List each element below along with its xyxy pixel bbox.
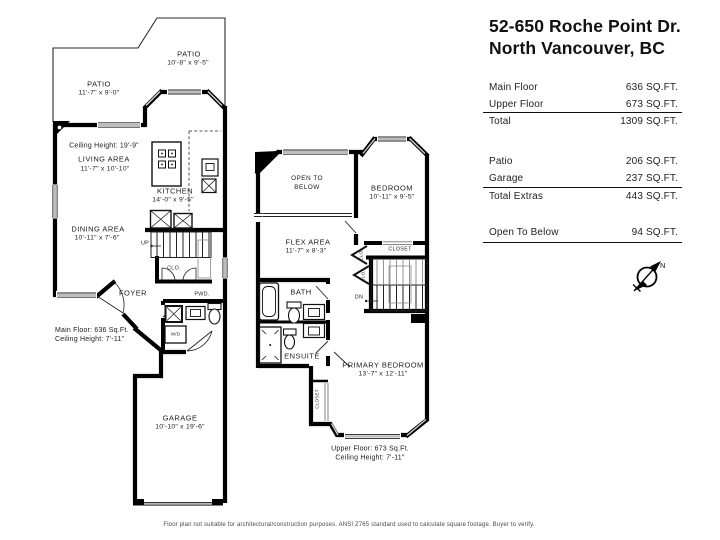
compass-icon	[633, 261, 661, 292]
bedroom-dims: 10'-11" x 9'-5"	[369, 195, 414, 202]
row-label: Total Extras	[489, 191, 543, 202]
row-value: 206 SQ.FT.	[626, 156, 678, 167]
dn-label: DN	[355, 295, 363, 300]
summary-row-open-below: Open To Below 94 SQ.FT.	[489, 227, 678, 238]
bedroom-name: BEDROOM	[371, 184, 413, 192]
flex-area-dims: 11'-7" x 8'-3"	[285, 249, 326, 256]
row-value: 94 SQ.FT.	[632, 227, 678, 238]
window-top-wall	[97, 121, 141, 130]
row-label: Patio	[489, 156, 513, 167]
patio-upper-dims: 10'-8" x 9'-5"	[167, 61, 209, 68]
kitchen-name: KITCHEN	[157, 187, 193, 195]
row-label: Open To Below	[489, 227, 559, 238]
window-dining	[56, 291, 97, 300]
compass-n-label: N	[660, 261, 665, 270]
wall-notch	[411, 314, 428, 323]
ensuite-label: ENSUITE	[284, 352, 320, 360]
garage-entry-door	[187, 331, 212, 351]
closet-label-main: CLO.	[167, 266, 181, 271]
patio-outline	[53, 18, 225, 122]
garage-name: GARAGE	[163, 414, 198, 422]
page-title-line2: North Vancouver, BC	[489, 38, 665, 59]
disclaimer-text: Floor plan not suitable for architectura…	[148, 522, 550, 528]
main-floor-footer-1: Main Floor: 636 Sq.Ft.	[55, 327, 129, 334]
kitchen-appliance-wall	[202, 179, 216, 193]
row-value: 1309 SQ.FT.	[620, 116, 678, 127]
bedroom-closet-label: CLOSET	[388, 247, 411, 252]
bath-vanity	[304, 305, 325, 320]
clo2-label: CLO.	[362, 270, 367, 282]
corner-wedge-main	[53, 121, 70, 138]
garage-dims: 10'-10" x 19'-6"	[155, 425, 205, 432]
corner-light	[58, 126, 62, 130]
kitchen-appliance-b	[174, 214, 192, 229]
patio-lower-dims: 11'-7" x 9'-0"	[78, 91, 119, 98]
garage-door	[133, 499, 223, 506]
main-floor-plan	[50, 18, 229, 506]
kitchen-appliance-a	[151, 211, 172, 229]
dining-area-name: DINING AREA	[71, 225, 124, 233]
page-title-line1: 52-650 Roche Point Dr.	[489, 16, 681, 37]
main-floor-footer-2: Ceiling Height: 7'-11"	[55, 336, 124, 343]
powder-label: PWD.	[194, 292, 209, 297]
dining-area-dims: 10'-11" x 7'-6"	[74, 236, 119, 243]
table-rule-1	[483, 112, 682, 113]
primary-closet-label: CLOSET	[316, 389, 321, 409]
table-rule-3	[483, 242, 682, 243]
kitchen-sink	[202, 159, 218, 176]
summary-row-garage: Garage 237 SQ.FT.	[489, 173, 678, 184]
window-upper-top	[282, 148, 349, 156]
table-rule-2	[483, 187, 682, 188]
living-area-name: LIVING AREA	[78, 155, 130, 163]
kitchen-island	[152, 142, 181, 186]
powder-sink	[186, 307, 205, 320]
stairs-upper	[365, 259, 427, 311]
row-label: Garage	[489, 173, 523, 184]
primary-bedroom-dims: 13'-7" x 12'-11"	[358, 372, 407, 379]
open-to-below-line1: OPEN TO	[291, 176, 323, 183]
primary-closet-slider	[325, 383, 328, 421]
floor-plan-page: PATIO 10'-8" x 9'-5" PATIO 11'-7" x 9'-0…	[0, 0, 720, 540]
laundry-sink	[166, 306, 183, 322]
upper-floor-footer-2: Ceiling Height: 7'-11"	[335, 455, 404, 462]
railing-open-below	[258, 214, 352, 217]
summary-row-upper-floor: Upper Floor 673 SQ.FT.	[489, 99, 678, 110]
row-value: 443 SQ.FT.	[626, 191, 678, 202]
bath-door-leaf	[316, 286, 328, 299]
living-area-dims: 11'-7" x 10'-10"	[80, 167, 129, 174]
powder-toilet	[208, 304, 221, 325]
bedroom-closet-slider	[382, 241, 413, 246]
ensuite-toilet	[284, 329, 297, 349]
foyer-label: FOYER	[119, 289, 147, 297]
kitchen-dims: 14'-0" x 9'-5"	[152, 198, 194, 205]
bathtub	[260, 283, 279, 320]
bath-label: BATH	[290, 288, 311, 296]
upper-floor-plan	[254, 135, 429, 440]
primary-bedroom-name: PRIMARY BEDROOM	[342, 361, 424, 369]
up-label: UP	[141, 241, 149, 246]
patio-upper-name: PATIO	[177, 50, 201, 58]
bedroom-door-leaf	[345, 221, 356, 233]
bath-toilet	[287, 302, 301, 323]
ceiling-note-main: Ceiling Height: 19'-9"	[69, 143, 139, 150]
summary-row-total-extras: Total Extras 443 SQ.FT.	[489, 191, 678, 202]
summary-row-total: Total 1309 SQ.FT.	[489, 116, 678, 127]
open-to-below-line2: BELOW	[294, 185, 319, 192]
ensuite-vanity	[304, 324, 325, 338]
summary-row-main-floor: Main Floor 636 SQ.FT.	[489, 82, 678, 93]
flex-area-name: FLEX AREA	[286, 238, 331, 246]
clo1-label: CLO.	[360, 249, 365, 261]
row-value: 237 SQ.FT.	[626, 173, 678, 184]
row-label: Main Floor	[489, 82, 538, 93]
window-left-wall	[50, 185, 59, 219]
upper-floor-footer-1: Upper Floor: 673 Sq.Ft.	[331, 446, 409, 453]
summary-row-patio: Patio 206 SQ.FT.	[489, 156, 678, 167]
shower	[260, 327, 282, 363]
row-value: 636 SQ.FT.	[626, 82, 678, 93]
row-label: Total	[489, 116, 511, 127]
window-right-wall	[221, 258, 230, 279]
patio-lower-name: PATIO	[87, 80, 111, 88]
washer-dryer-label: W/D	[171, 332, 181, 337]
left-wall-gap	[254, 213, 263, 222]
row-value: 673 SQ.FT.	[626, 99, 678, 110]
row-label: Upper Floor	[489, 99, 543, 110]
